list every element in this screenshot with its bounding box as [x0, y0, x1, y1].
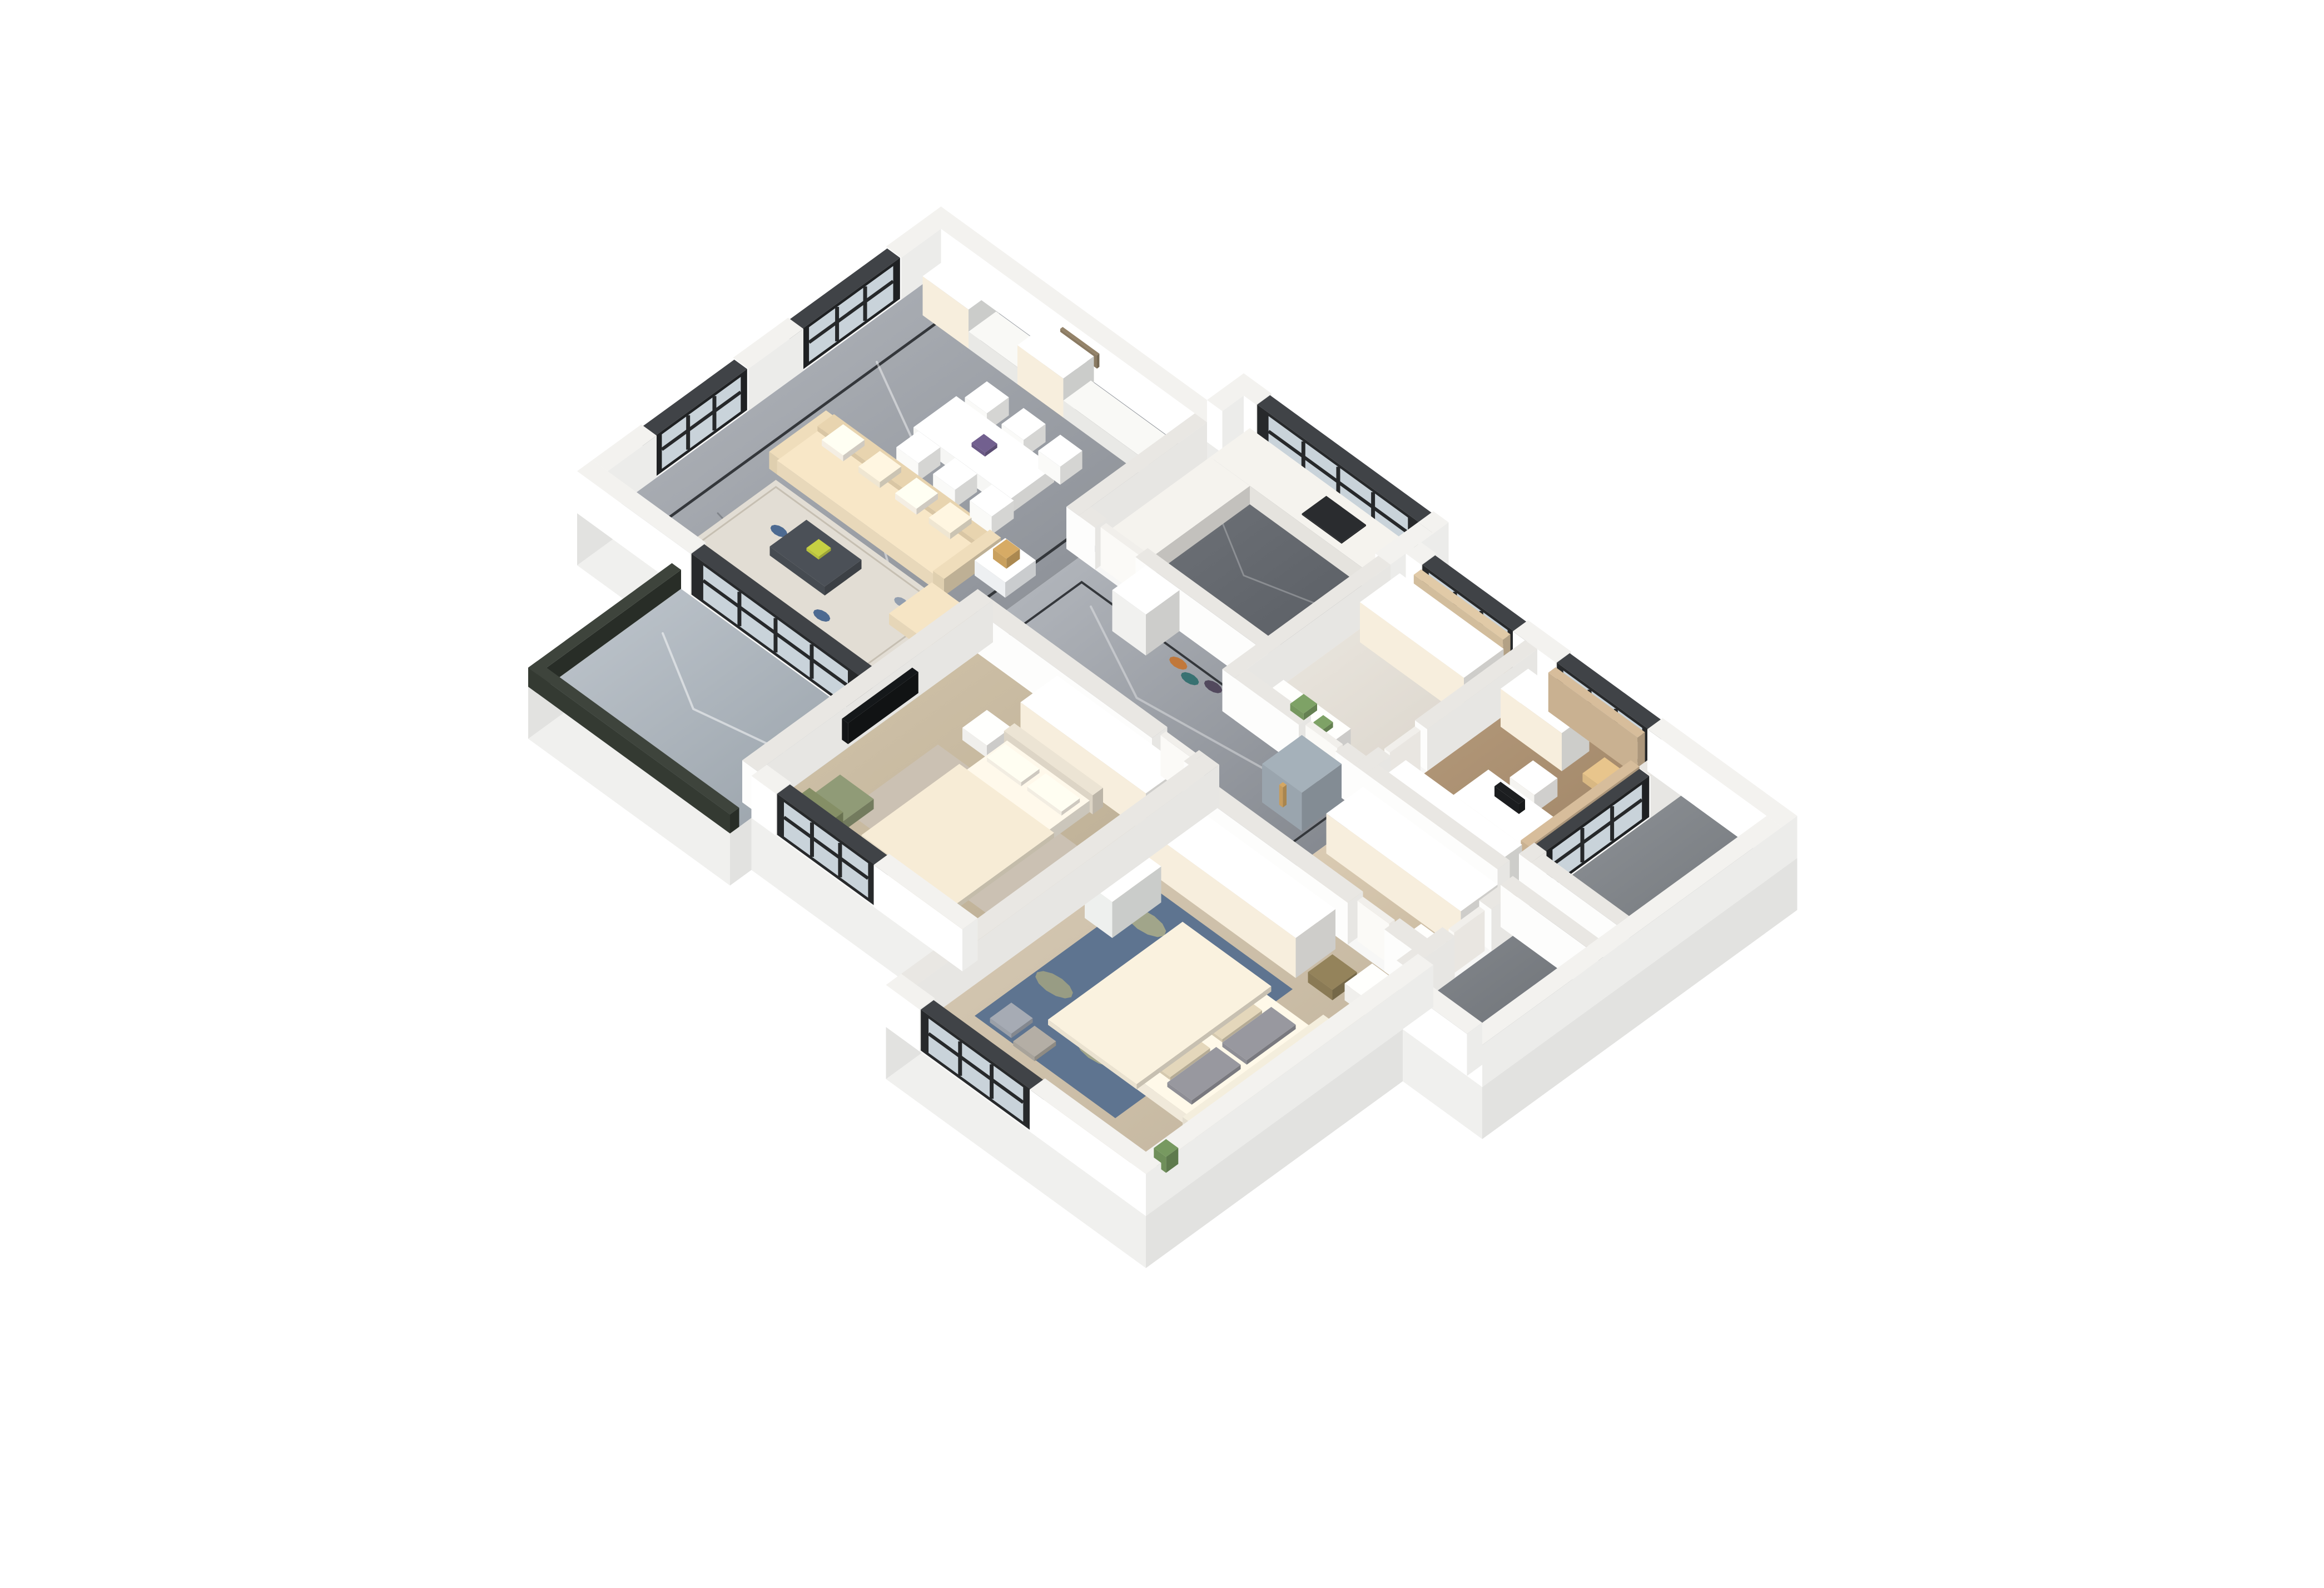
floorplan-3d-render: [0, 0, 2324, 1588]
cabinet-gold-handle: [1279, 782, 1287, 808]
page-background: [0, 0, 2324, 1588]
